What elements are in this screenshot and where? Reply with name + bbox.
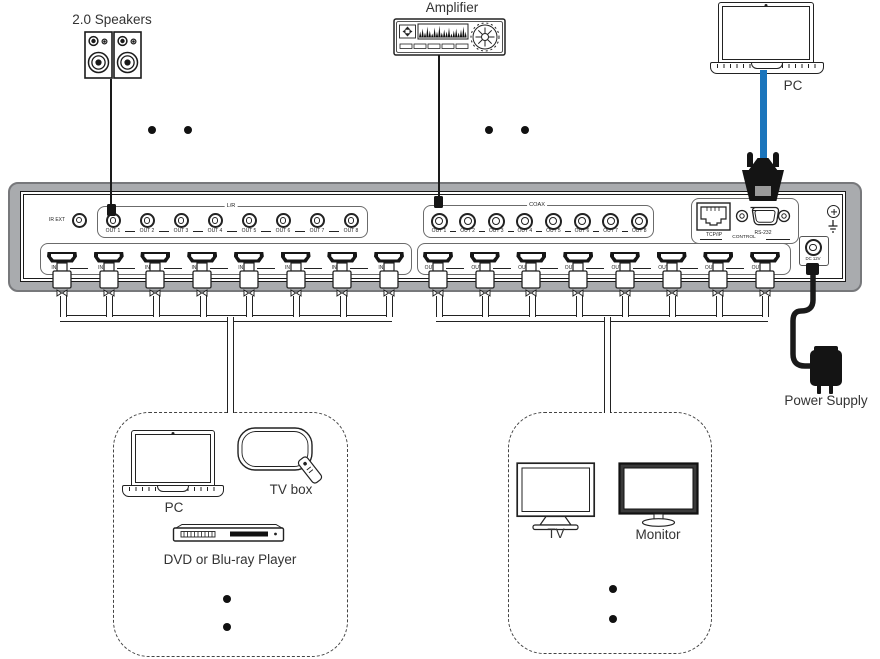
label-dash [261,231,271,232]
screw-icon [827,205,840,218]
hdmi-out-port [470,252,500,263]
hdmi-plug [706,262,730,299]
hdmi-plug [473,262,497,299]
ellipsis-dot [485,126,493,134]
hdmi-in-port [47,252,77,263]
hdmi-cable [246,296,253,317]
rs232-cable [760,70,767,162]
coax-audio-out-jack [602,213,619,230]
port-label: OUT 6 [575,228,590,234]
analog-audio-out-jack [276,213,291,228]
hdmi-plug [613,262,637,299]
dc-jack [805,239,822,256]
speakers-icon [84,31,142,80]
label-dash [536,231,542,232]
hdmi-cable [60,296,67,317]
hdmi-plug [50,262,74,299]
hdmi-in-port [140,252,170,263]
hdmi-in-port [234,252,264,263]
control-dash [700,239,722,240]
displays-box [508,412,712,654]
coax-audio-out-jack [516,213,533,230]
ellipsis-dot [184,126,192,134]
hdmi-out-port [516,252,546,263]
label-dash [565,231,571,232]
hdmi-cable [669,296,676,317]
port-label: OUT 1 [432,228,447,234]
port-label: OUT 8 [344,228,359,234]
port-label: OUT 4 [517,228,532,234]
port-label: OUT 7 [310,228,325,234]
hdmi-cable [716,296,723,317]
port-label: OUT 8 [632,228,647,234]
rj45-port [696,202,732,232]
label-dash [125,231,135,232]
power-adapter-prong [829,385,833,394]
port-label: OUT 7 [603,228,618,234]
hdmi-out-port [750,252,780,263]
coax-group-label: COAX [527,202,547,208]
coax-audio-out-jack [574,213,591,230]
db9-thumbscrew-left [747,152,753,167]
port-label: OUT 3 [489,228,504,234]
port-label: OUT 4 [208,228,223,234]
hdmi-out-port [563,252,593,263]
amplifier-cable-plug [434,196,443,208]
hdmi-cable [576,296,583,317]
db9-plug-slot [755,186,771,196]
hdmi-cable [340,296,347,317]
port-label: OUT 2 [460,228,475,234]
hdmi-cable [153,296,160,317]
speakers-label: 2.0 Speakers [72,12,152,27]
hdmi-plug [97,262,121,299]
speaker-cable-plug [107,204,116,216]
hdmi-in-port [374,252,404,263]
hdmi-out-port [703,252,733,263]
analog-audio-out-jack [208,213,223,228]
analog-audio-out-jack [242,213,257,228]
hdmi-in-port [327,252,357,263]
amplifier-cable [438,55,440,200]
coax-audio-group [423,205,654,238]
control-label: CONTROL [732,235,755,240]
pc-label: PC [784,78,803,93]
analog-audio-out-jack [140,213,155,228]
label-dash [159,231,169,232]
amplifier-label: Amplifier [426,0,479,15]
displays-trunk-cable [604,317,611,413]
analog-audio-out-jack [174,213,189,228]
speaker-cable [110,79,112,207]
coax-audio-out-jack [459,213,476,230]
hdmi-in-port [281,252,311,263]
power-adapter-body [810,350,842,386]
hdmi-out-port [610,252,640,263]
label-dash [508,231,514,232]
hdmi-plug [143,262,167,299]
laptop-screen [718,2,814,64]
rs232-port [734,202,792,230]
hdmi-cable [106,296,113,317]
laptop-base [710,62,824,74]
hdmi-plug [237,262,261,299]
label-dash [622,231,628,232]
hdmi-plug [753,262,777,299]
power-adapter-prong [817,385,821,394]
label-dash [227,231,237,232]
hdmi-plug [426,262,450,299]
db9-thumbscrew-right [773,152,779,167]
hdmi-plug [190,262,214,299]
ellipsis-dot [521,126,529,134]
hdmi-out-port [423,252,453,263]
hdmi-plug [566,262,590,299]
sources-box [113,412,348,657]
connection-diagram: 2.0 Speakers Amplifier PC [0,0,880,659]
ir-ext-label: IR EXT [49,217,65,223]
dc-plug [806,263,819,275]
laptop-icon [710,2,824,74]
hdmi-out-port [657,252,687,263]
label-dash [450,231,456,232]
ground-icon [827,219,839,234]
label-dash [329,231,339,232]
hdmi-cable [482,296,489,317]
port-label: OUT 1 [106,228,121,234]
label-dash [295,231,305,232]
laptop-notch [751,63,783,69]
port-label: OUT 5 [242,228,257,234]
coax-audio-out-jack [631,213,648,230]
analog-group-label: L/R [225,203,238,209]
hdmi-cable [200,296,207,317]
port-label: OUT 2 [140,228,155,234]
label-dash [193,231,203,232]
hdmi-cable [386,296,393,317]
port-label: OUT 5 [546,228,561,234]
ellipsis-dot [148,126,156,134]
port-label: OUT 6 [276,228,291,234]
coax-audio-out-jack [431,213,448,230]
hdmi-cable [436,296,443,317]
coax-audio-out-jack [545,213,562,230]
hdmi-plug [660,262,684,299]
label-dash [593,231,599,232]
hdmi-in-port [94,252,124,263]
rs232-label: RS-232 [755,230,772,236]
hdmi-cable [529,296,536,317]
coax-audio-out-jack [488,213,505,230]
hdmi-plug [519,262,543,299]
port-label: OUT 3 [174,228,189,234]
hdmi-cable [622,296,629,317]
ir-ext-jack [72,213,87,228]
hdmi-plug [284,262,308,299]
control-dash [766,239,790,240]
hdmi-cable [293,296,300,317]
hdmi-plug [377,262,401,299]
hdmi-in-port [187,252,217,263]
amplifier-icon [393,18,506,56]
tcpip-label: TCP/IP [706,232,722,238]
label-dash [479,231,485,232]
hdmi-cable [762,296,769,317]
sources-trunk-cable [227,317,234,413]
analog-audio-group [97,206,368,238]
analog-audio-out-jack [344,213,359,228]
hdmi-plug [330,262,354,299]
analog-audio-out-jack [310,213,325,228]
